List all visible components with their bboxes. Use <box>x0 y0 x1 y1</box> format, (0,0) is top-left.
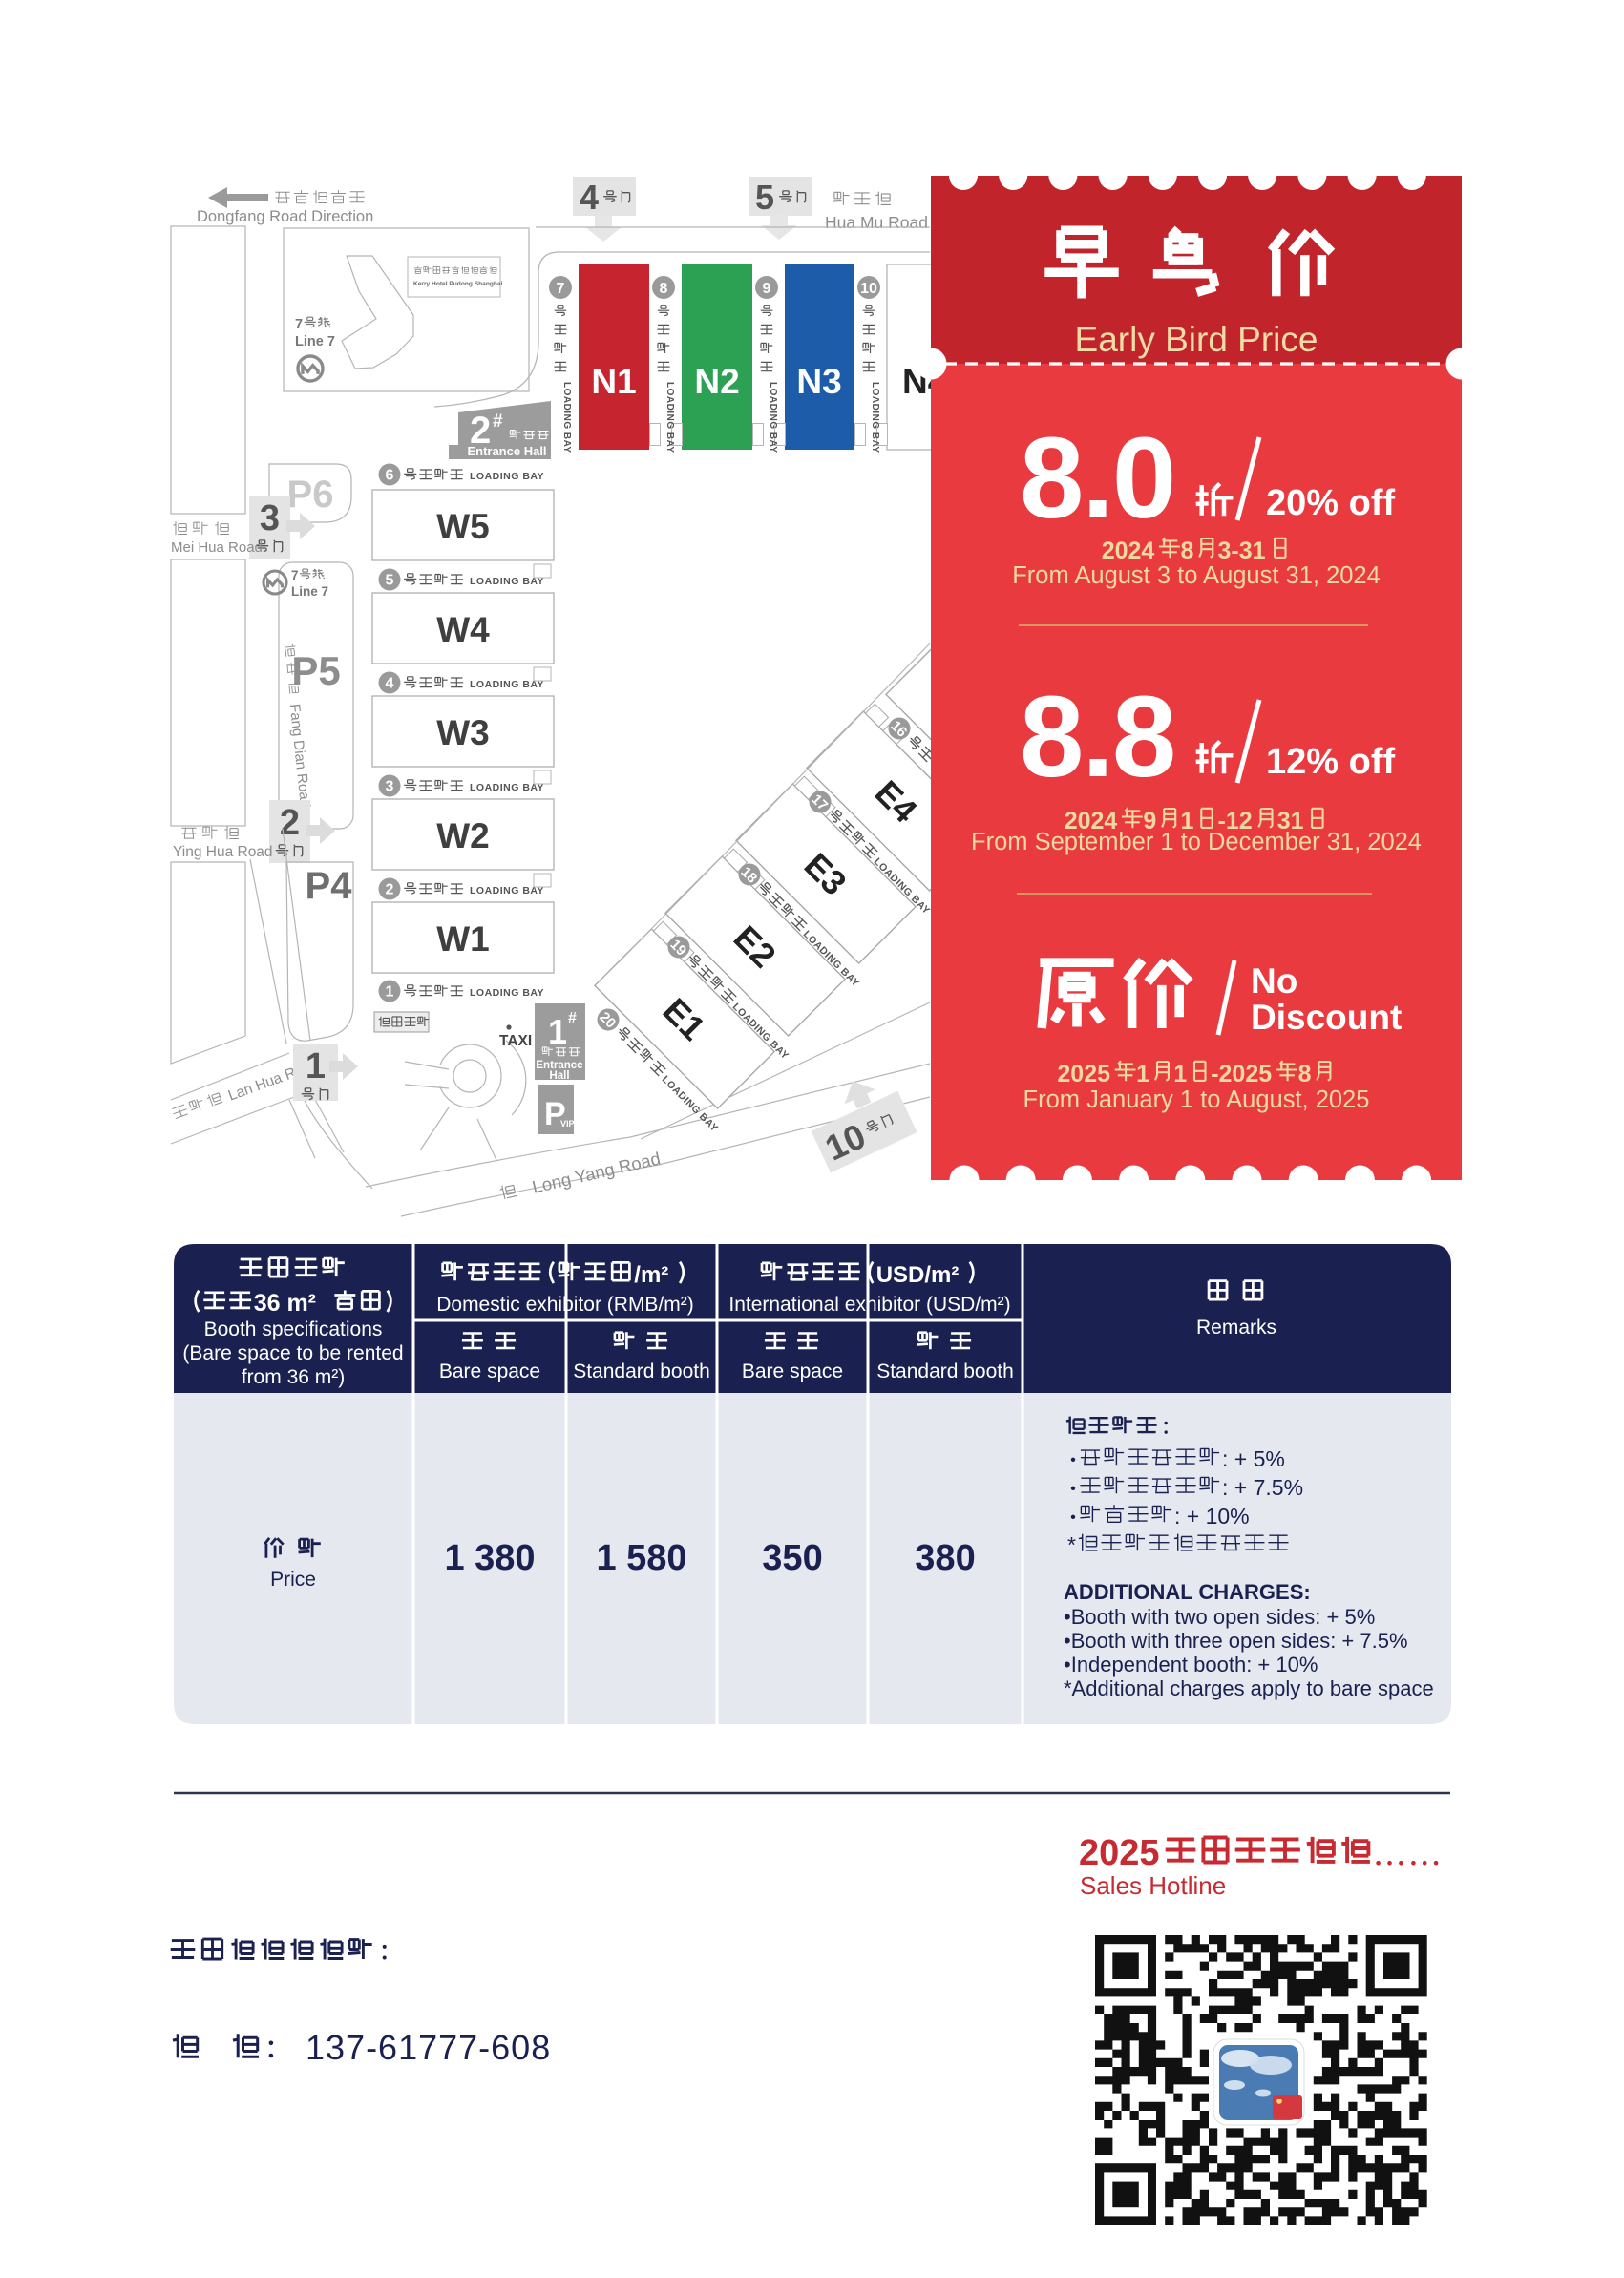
svg-text:W5: W5 <box>436 507 490 546</box>
svg-text:LOADING BAY: LOADING BAY <box>470 471 544 482</box>
svg-text:4: 4 <box>580 178 599 217</box>
svg-text:6: 6 <box>386 468 394 484</box>
svg-text:N3: N3 <box>796 362 841 401</box>
svg-text:LOADING BAY: LOADING BAY <box>561 382 572 453</box>
svg-text:3: 3 <box>386 779 394 795</box>
svg-text:8.0: 8.0 <box>1020 412 1174 542</box>
svg-text:LOADING BAY: LOADING BAY <box>664 382 675 453</box>
svg-text:*Additional charges apply to b: *Additional charges apply to bare space <box>1064 1677 1434 1700</box>
svg-text:/m²: /m² <box>634 1262 668 1288</box>
svg-text:#: # <box>493 411 503 432</box>
svg-text:W2: W2 <box>436 816 490 855</box>
svg-text:LOADING BAY: LOADING BAY <box>470 679 544 690</box>
svg-text:LOADING BAY: LOADING BAY <box>470 576 544 587</box>
svg-text:•Independent booth: + 10%: •Independent booth: + 10% <box>1064 1653 1318 1677</box>
svg-text:Kerry Hotel Pudong Shanghai: Kerry Hotel Pudong Shanghai <box>413 281 503 287</box>
svg-text:Booth specifications: Booth specifications <box>204 1318 383 1340</box>
svg-text:20% off: 20% off <box>1266 483 1395 523</box>
svg-text:Early Bird Price: Early Bird Price <box>1075 320 1318 359</box>
svg-text:12% off: 12% off <box>1266 742 1395 782</box>
svg-text:1 380: 1 380 <box>444 1538 535 1578</box>
svg-text:: + 5%: : + 5% <box>1222 1446 1285 1471</box>
svg-text:*: * <box>1067 1532 1076 1557</box>
svg-text:Hall: Hall <box>549 1070 569 1082</box>
svg-text:9: 9 <box>763 281 771 297</box>
svg-text:Discount: Discount <box>1251 998 1402 1037</box>
svg-text:Standard booth: Standard booth <box>876 1360 1014 1382</box>
svg-text:350: 350 <box>762 1538 822 1578</box>
svg-text:3-31: 3-31 <box>1218 538 1266 564</box>
svg-text:4: 4 <box>386 676 394 692</box>
svg-text:: + 7.5%: : + 7.5% <box>1222 1475 1303 1500</box>
svg-text:1: 1 <box>386 984 394 1001</box>
svg-text:380: 380 <box>915 1538 975 1578</box>
svg-text:Mei Hua Road: Mei Hua Road <box>171 539 263 556</box>
svg-text:36 m²: 36 m² <box>254 1290 316 1317</box>
svg-text:•Booth with three open sides:: •Booth with three open sides: + 7.5% <box>1064 1629 1408 1653</box>
svg-text:5: 5 <box>386 573 394 589</box>
svg-text:#: # <box>568 1010 577 1026</box>
svg-text:Dongfang Road Direction: Dongfang Road Direction <box>197 208 373 225</box>
svg-text:7: 7 <box>557 281 565 297</box>
svg-text:1: 1 <box>548 1012 567 1051</box>
svg-text:P4: P4 <box>306 865 353 907</box>
svg-text:TAXI: TAXI <box>499 1033 532 1049</box>
svg-text:Sales Hotline: Sales Hotline <box>1080 1871 1226 1900</box>
svg-text:1: 1 <box>1173 1061 1187 1087</box>
svg-text:Line 7: Line 7 <box>295 334 335 349</box>
svg-text:VIP: VIP <box>560 1119 575 1128</box>
svg-text:No: No <box>1251 961 1297 1001</box>
svg-text:(Bare space to be rented: (Bare space to be rented <box>182 1342 403 1364</box>
svg-text:8: 8 <box>1181 538 1194 564</box>
svg-text:•Booth with two open sides: +: •Booth with two open sides: + 5% <box>1064 1605 1375 1629</box>
svg-text:8: 8 <box>660 281 668 297</box>
svg-text:-2025: -2025 <box>1211 1061 1272 1087</box>
svg-text:1: 1 <box>306 1046 326 1086</box>
svg-text:2: 2 <box>280 803 300 843</box>
svg-text:Line 7: Line 7 <box>291 584 328 599</box>
svg-text:from 36 m²): from 36 m²) <box>242 1366 346 1388</box>
svg-text:2: 2 <box>386 882 394 898</box>
svg-text:1 580: 1 580 <box>596 1538 686 1578</box>
svg-text:P6: P6 <box>287 474 334 516</box>
svg-text:Domestic exhibitor (RMB/m²): Domestic exhibitor (RMB/m²) <box>436 1294 694 1316</box>
svg-text:2025: 2025 <box>1079 1833 1160 1873</box>
svg-text:: + 10%: : + 10% <box>1174 1504 1250 1529</box>
svg-text:Ying Hua Road: Ying Hua Road <box>173 844 273 860</box>
svg-text:10: 10 <box>860 281 877 297</box>
svg-text:International exhibitor (USD/m: International exhibitor (USD/m²) <box>728 1294 1010 1316</box>
svg-text:W4: W4 <box>436 610 490 649</box>
svg-text:From January 1 to August, 2025: From January 1 to August, 2025 <box>1023 1086 1370 1113</box>
svg-text:Hua Mu Road: Hua Mu Road <box>825 213 928 232</box>
svg-text:8: 8 <box>1298 1061 1312 1087</box>
svg-text:N2: N2 <box>694 362 739 401</box>
svg-text:3: 3 <box>260 498 280 538</box>
svg-text:LOADING BAY: LOADING BAY <box>470 782 544 793</box>
svg-text:5: 5 <box>755 178 774 217</box>
svg-text:LOADING BAY: LOADING BAY <box>470 987 544 999</box>
svg-text:Entrance Hall: Entrance Hall <box>467 444 546 458</box>
svg-text:W1: W1 <box>436 919 490 959</box>
svg-text:8.8: 8.8 <box>1020 671 1174 801</box>
svg-text:USD/m²: USD/m² <box>876 1262 960 1288</box>
svg-text:W3: W3 <box>436 713 490 752</box>
svg-text:LOADING BAY: LOADING BAY <box>870 382 880 453</box>
svg-text:From September 1 to December 3: From September 1 to December 31, 2024 <box>971 829 1422 855</box>
svg-text:2025: 2025 <box>1057 1061 1110 1087</box>
svg-text:ADDITIONAL CHARGES:: ADDITIONAL CHARGES: <box>1064 1580 1311 1604</box>
svg-text:P5: P5 <box>291 648 340 693</box>
svg-text:137-61777-608: 137-61777-608 <box>306 2028 551 2067</box>
svg-text:7: 7 <box>291 568 299 582</box>
svg-text:Standard booth: Standard booth <box>573 1360 710 1382</box>
svg-text:Bare space: Bare space <box>742 1360 843 1382</box>
svg-text:From August 3 to August 31, 20: From August 3 to August 31, 2024 <box>1012 562 1381 589</box>
svg-text:Remarks: Remarks <box>1196 1317 1276 1339</box>
svg-text:2024: 2024 <box>1102 538 1155 564</box>
svg-text:N1: N1 <box>591 362 636 401</box>
svg-text:LOADING BAY: LOADING BAY <box>470 885 544 896</box>
svg-text:Price: Price <box>270 1569 316 1591</box>
svg-text:1: 1 <box>1136 1061 1149 1087</box>
svg-text:Bare space: Bare space <box>439 1360 540 1382</box>
svg-text:LOADING BAY: LOADING BAY <box>768 382 778 453</box>
svg-text:7: 7 <box>295 317 303 332</box>
